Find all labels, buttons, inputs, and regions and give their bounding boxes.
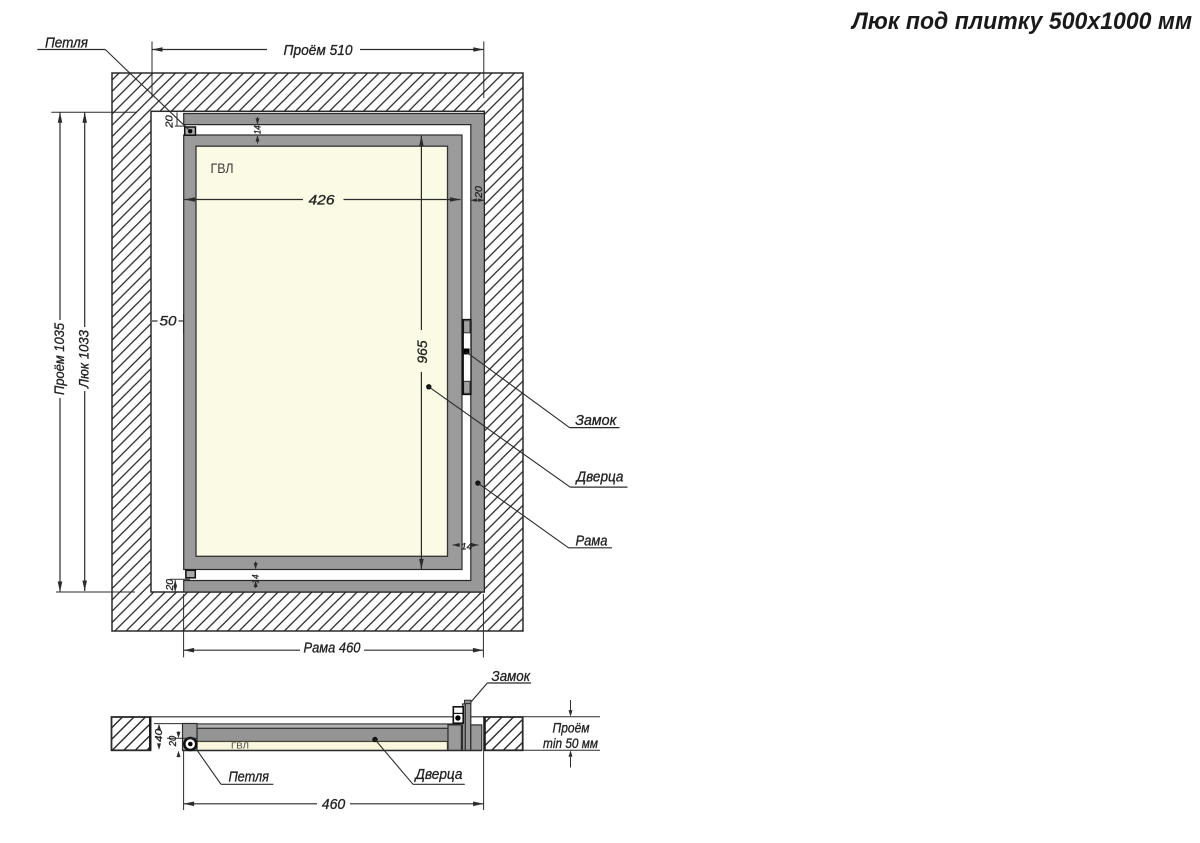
svg-text:460: 460 bbox=[322, 797, 346, 813]
svg-text:Дверца: Дверца bbox=[414, 767, 463, 783]
svg-text:Дверца: Дверца bbox=[575, 470, 624, 486]
svg-text:20: 20 bbox=[473, 186, 485, 199]
svg-text:Рама: Рама bbox=[576, 534, 608, 550]
svg-text:Проём: Проём bbox=[553, 721, 590, 736]
svg-text:14: 14 bbox=[251, 575, 262, 584]
svg-text:14: 14 bbox=[252, 125, 263, 134]
svg-text:20: 20 bbox=[164, 579, 176, 592]
svg-text:ГВЛ: ГВЛ bbox=[211, 160, 234, 176]
svg-text:ГВЛ: ГВЛ bbox=[231, 742, 249, 751]
svg-text:Петля: Петля bbox=[228, 769, 269, 785]
svg-text:Замок: Замок bbox=[575, 413, 617, 429]
svg-text:20: 20 bbox=[164, 115, 176, 129]
svg-text:426: 426 bbox=[309, 191, 335, 207]
svg-text:14: 14 bbox=[461, 541, 472, 552]
svg-text:20: 20 bbox=[167, 736, 179, 748]
svg-text:Проём 1035: Проём 1035 bbox=[51, 323, 67, 395]
svg-text:50: 50 bbox=[160, 313, 177, 329]
svg-text:Проём 510: Проём 510 bbox=[284, 43, 353, 59]
svg-text:40: 40 bbox=[153, 729, 165, 742]
svg-text:min 50 мм: min 50 мм bbox=[543, 736, 598, 751]
svg-text:965: 965 bbox=[414, 340, 430, 363]
svg-text:Люк 1033: Люк 1033 bbox=[76, 330, 92, 389]
svg-text:Люк под плитку 500х1000 мм: Люк под плитку 500х1000 мм bbox=[850, 8, 1192, 35]
svg-text:Рама 460: Рама 460 bbox=[304, 641, 361, 657]
